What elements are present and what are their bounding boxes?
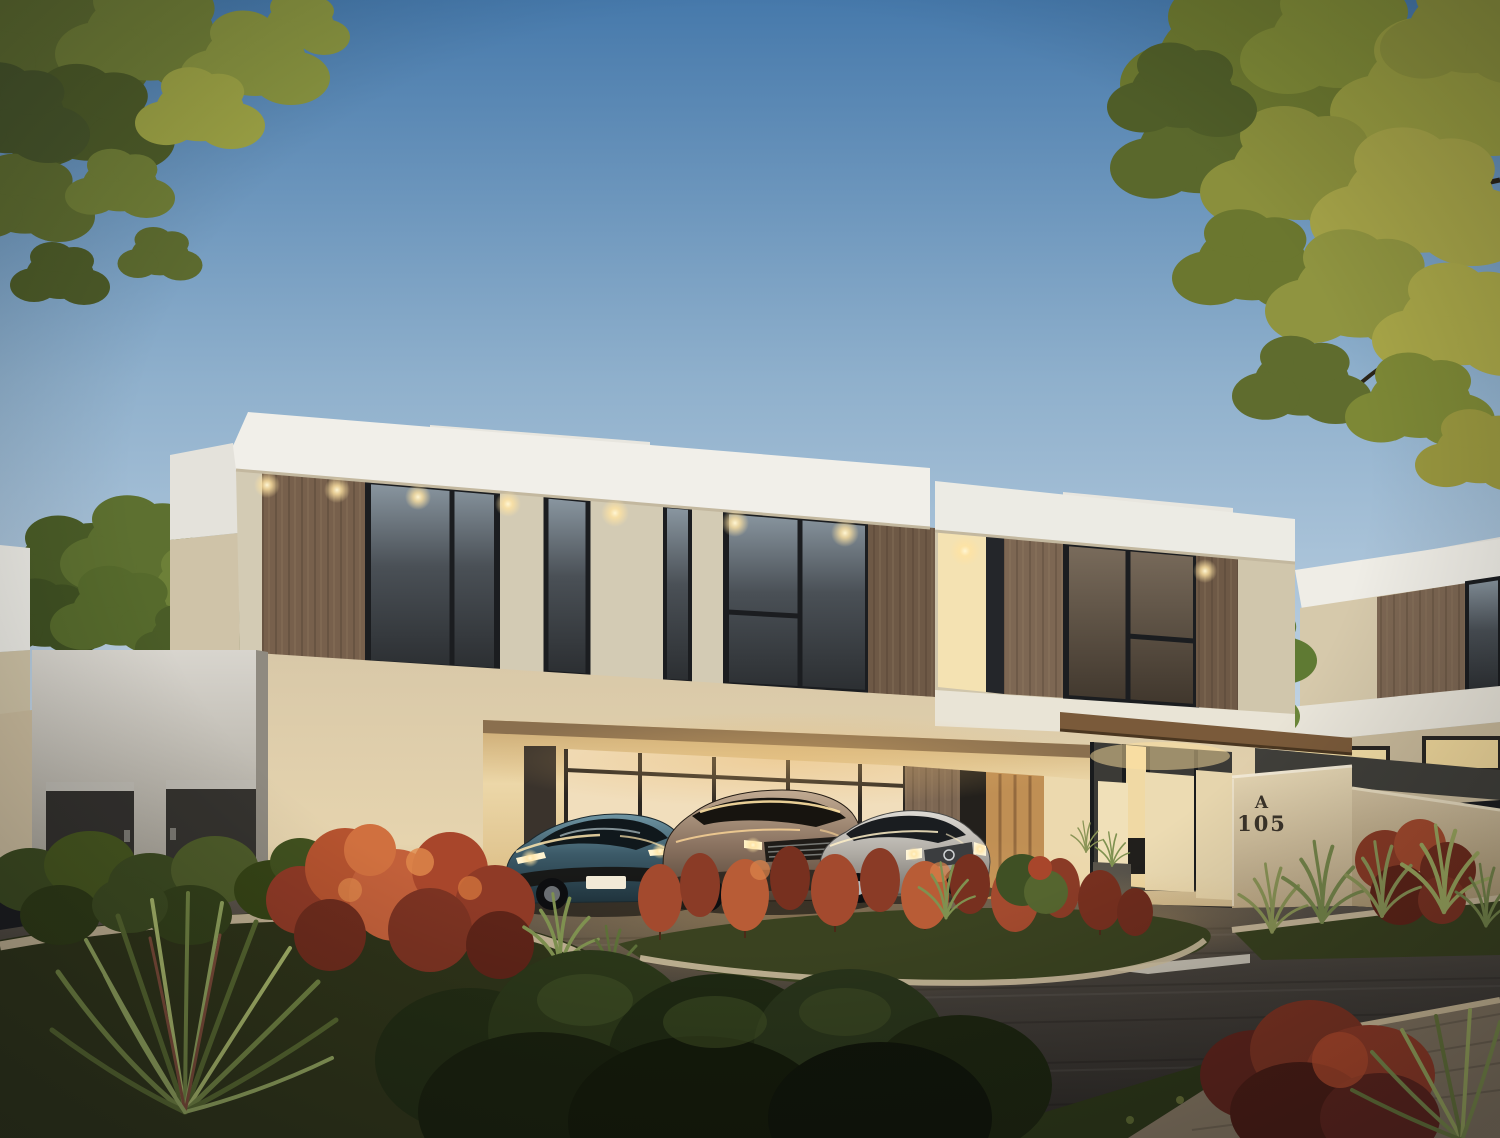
downlight-icon (254, 472, 280, 498)
upper-window (368, 481, 497, 671)
downlight-icon (601, 499, 629, 527)
shrub-highlight (750, 860, 770, 880)
headlight-glow (745, 837, 761, 853)
door-lintel (46, 782, 134, 791)
downlight-icon (495, 491, 521, 517)
downlight-icon (831, 519, 859, 547)
unit-number: 105 (1237, 811, 1287, 836)
shrub-highlight (537, 974, 633, 1026)
scene-svg: A 105 (0, 0, 1500, 1138)
niche-window (986, 536, 1004, 694)
downlight-icon (324, 477, 350, 503)
wood-grain (1004, 538, 1066, 698)
license-plate (586, 876, 626, 889)
upper-window-right (1066, 543, 1196, 707)
side-return-white (170, 443, 238, 540)
adjacent-unit-left (0, 545, 30, 716)
grass-fleck (1126, 1116, 1134, 1124)
headlight-glow (521, 849, 539, 867)
downlight-icon (721, 509, 749, 537)
door-handle (124, 830, 130, 842)
side-wall-beige (170, 533, 240, 655)
shrub-highlight (663, 996, 767, 1048)
downlight-icon (1193, 559, 1217, 583)
entry-ceiling-glow (1090, 742, 1230, 770)
enclosure-side (256, 650, 268, 888)
upper-window (546, 496, 588, 676)
grass-fleck (1176, 1096, 1184, 1104)
downlight-icon (950, 536, 980, 566)
shrub-highlight (1312, 1032, 1368, 1088)
upper-window-slit (665, 506, 690, 682)
unit-letter: A (1254, 793, 1269, 813)
shrub-highlight (799, 988, 891, 1036)
headlight-glow (973, 842, 987, 856)
headlight-glow (907, 847, 921, 861)
neighbor-window (1467, 578, 1500, 695)
wood-grain (868, 523, 935, 697)
downlight-icon (405, 484, 431, 510)
door-handle (170, 828, 176, 840)
villa-render: A 105 (0, 0, 1500, 1138)
wood-grain (262, 472, 368, 663)
door-lintel (166, 780, 256, 789)
